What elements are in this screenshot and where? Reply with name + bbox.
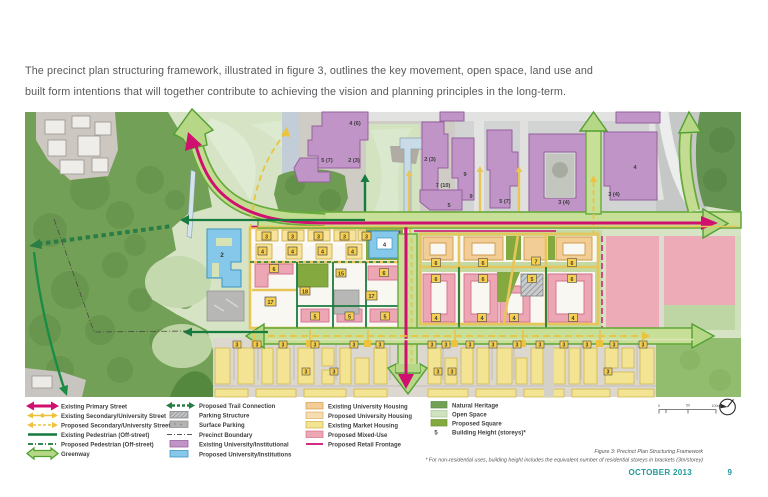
svg-text:Precinct Boundary: Precinct Boundary: [199, 433, 253, 439]
svg-text:9: 9: [728, 468, 733, 477]
svg-text:3: 3: [607, 370, 610, 376]
svg-text:2 (3): 2 (3): [348, 158, 360, 164]
svg-text:3: 3: [265, 234, 268, 240]
svg-text:3: 3: [539, 343, 542, 349]
svg-text:6: 6: [482, 261, 485, 267]
svg-text:3: 3: [586, 343, 589, 349]
svg-text:5: 5: [447, 203, 450, 209]
svg-text:3: 3: [437, 370, 440, 376]
svg-text:3: 3: [445, 343, 448, 349]
svg-text:3: 3: [492, 343, 495, 349]
svg-text:6: 6: [435, 277, 438, 283]
svg-text:Proposed Square: Proposed Square: [452, 422, 502, 428]
svg-text:Surface Parking: Surface Parking: [199, 423, 245, 429]
svg-text:3: 3: [282, 343, 285, 349]
svg-text:3: 3: [365, 234, 368, 240]
svg-text:Proposed University/Institutio: Proposed University/Institutions: [199, 453, 292, 459]
svg-text:6: 6: [571, 261, 574, 267]
svg-text:7 (10): 7 (10): [436, 183, 451, 189]
svg-text:17: 17: [369, 294, 375, 300]
svg-text:3: 3: [256, 343, 259, 349]
svg-text:Proposed Trail Connection: Proposed Trail Connection: [199, 404, 276, 410]
svg-text:6: 6: [571, 277, 574, 283]
svg-text:Existing University Housing: Existing University Housing: [328, 405, 408, 411]
svg-text:Building Height (storeys)*: Building Height (storeys)*: [452, 431, 526, 437]
svg-text:5: 5: [348, 315, 351, 321]
svg-text:3: 3: [333, 370, 336, 376]
svg-text:3: 3: [613, 343, 616, 349]
svg-text:9: 9: [469, 194, 472, 200]
svg-text:Existing Primary Street: Existing Primary Street: [61, 405, 127, 411]
svg-text:5: 5: [434, 431, 438, 437]
svg-text:Figure 3: Precinct Plan Struct: Figure 3: Precinct Plan Structuring Fram…: [594, 449, 703, 455]
svg-text:6: 6: [273, 267, 276, 273]
svg-text:3: 3: [291, 234, 294, 240]
svg-text:3: 3: [305, 370, 308, 376]
svg-text:17: 17: [268, 300, 274, 306]
svg-text:Proposed Retail Frontage: Proposed Retail Frontage: [328, 443, 402, 449]
svg-text:3: 3: [343, 234, 346, 240]
svg-text:Existing Market Housing: Existing Market Housing: [328, 424, 398, 430]
svg-text:Proposed Secondary/University: Proposed Secondary/University Street: [61, 424, 170, 430]
svg-text:3: 3: [469, 343, 472, 349]
svg-text:18: 18: [302, 289, 308, 295]
svg-text:3 (4): 3 (4): [558, 200, 570, 206]
svg-text:Open Space: Open Space: [452, 413, 487, 419]
svg-text:4: 4: [513, 316, 516, 322]
svg-text:Existing Secondary/University: Existing Secondary/University Street: [61, 414, 166, 420]
svg-text:Existing University/Institutio: Existing University/Institutional: [199, 443, 289, 449]
svg-text:4 (6): 4 (6): [349, 121, 361, 127]
svg-text:4: 4: [435, 316, 438, 322]
svg-text:3: 3: [236, 343, 239, 349]
svg-text:4: 4: [572, 316, 575, 322]
svg-text:OCTOBER 2013: OCTOBER 2013: [629, 468, 693, 477]
svg-text:Parking Structure: Parking Structure: [199, 414, 250, 420]
svg-text:2 (3): 2 (3): [424, 157, 436, 163]
svg-text:Proposed Mixed-Use: Proposed Mixed-Use: [328, 433, 388, 439]
svg-text:50: 50: [686, 404, 690, 408]
svg-text:4: 4: [321, 249, 324, 255]
svg-text:3 (4): 3 (4): [608, 192, 620, 198]
svg-text:4: 4: [481, 316, 484, 322]
svg-text:3: 3: [642, 343, 645, 349]
svg-text:5 (7): 5 (7): [321, 158, 333, 164]
svg-text:15: 15: [338, 271, 344, 277]
svg-text:4: 4: [261, 249, 264, 255]
svg-text:Existing Pedestrian (Off-stree: Existing Pedestrian (Off-street): [61, 433, 149, 439]
svg-text:0: 0: [658, 404, 660, 408]
svg-text:4: 4: [291, 249, 294, 255]
svg-text:3: 3: [563, 343, 566, 349]
svg-text:5: 5: [384, 315, 387, 321]
svg-text:* For non-residential uses, bu: * For non-residential uses, building hei…: [425, 458, 703, 464]
svg-text:Natural Heritage: Natural Heritage: [452, 404, 499, 410]
svg-text:3: 3: [353, 343, 356, 349]
svg-text:5: 5: [314, 315, 317, 321]
svg-text:3: 3: [379, 343, 382, 349]
svg-text:6: 6: [482, 277, 485, 283]
svg-text:7: 7: [535, 260, 538, 266]
svg-text:4: 4: [351, 249, 354, 255]
svg-text:5: 5: [531, 277, 534, 283]
svg-text:3: 3: [317, 234, 320, 240]
svg-text:3: 3: [431, 343, 434, 349]
svg-text:Greenway: Greenway: [61, 452, 90, 458]
svg-text:6: 6: [435, 261, 438, 267]
svg-text:100m: 100m: [712, 404, 721, 408]
svg-text:Proposed University Housing: Proposed University Housing: [328, 414, 412, 420]
svg-text:Proposed Pedestrian (Off-stree: Proposed Pedestrian (Off-street): [61, 443, 154, 449]
svg-text:9: 9: [463, 172, 466, 178]
svg-text:3: 3: [516, 343, 519, 349]
svg-text:3: 3: [314, 343, 317, 349]
svg-text:6: 6: [383, 271, 386, 277]
svg-text:5 (7): 5 (7): [499, 199, 511, 205]
svg-text:3: 3: [451, 370, 454, 376]
